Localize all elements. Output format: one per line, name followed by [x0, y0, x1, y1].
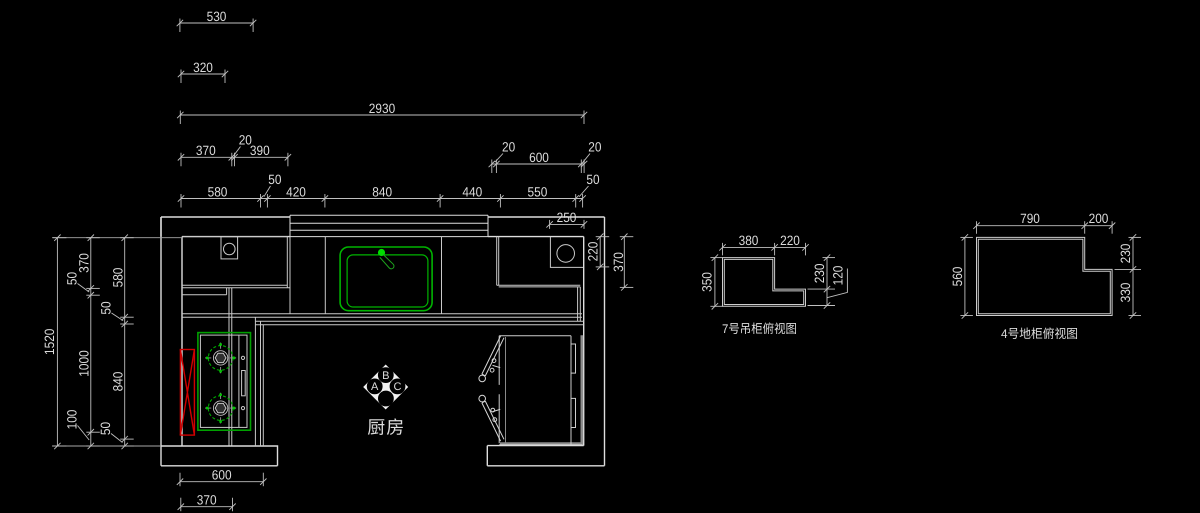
svg-text:1000: 1000: [77, 350, 92, 376]
svg-text:580: 580: [110, 268, 125, 288]
svg-text:330: 330: [1118, 283, 1133, 303]
svg-text:390: 390: [250, 143, 270, 158]
svg-text:20: 20: [588, 140, 601, 155]
svg-text:840: 840: [372, 184, 392, 199]
svg-text:100: 100: [65, 410, 80, 430]
svg-text:530: 530: [207, 9, 227, 24]
svg-text:50: 50: [65, 272, 80, 285]
svg-text:370: 370: [197, 492, 217, 507]
svg-text:840: 840: [110, 372, 125, 392]
svg-text:50: 50: [99, 301, 114, 314]
svg-text:350: 350: [700, 272, 715, 292]
svg-text:370: 370: [196, 143, 216, 158]
svg-text:440: 440: [462, 184, 482, 199]
svg-text:50: 50: [586, 172, 599, 187]
svg-text:7号吊柜俯视图: 7号吊柜俯视图: [722, 322, 797, 336]
svg-text:600: 600: [529, 150, 549, 165]
svg-text:C: C: [394, 381, 402, 393]
svg-text:20: 20: [502, 140, 515, 155]
svg-text:4号地柜俯视图: 4号地柜俯视图: [1001, 327, 1078, 341]
svg-text:320: 320: [193, 60, 213, 75]
svg-text:20: 20: [239, 133, 252, 148]
svg-text:120: 120: [830, 266, 845, 286]
svg-text:560: 560: [950, 267, 965, 287]
svg-text:550: 550: [528, 184, 548, 199]
svg-text:B: B: [382, 370, 389, 382]
svg-text:230: 230: [1118, 244, 1133, 264]
svg-text:220: 220: [780, 233, 800, 248]
svg-text:580: 580: [208, 184, 228, 199]
svg-text:1520: 1520: [42, 329, 57, 355]
svg-text:50: 50: [98, 422, 113, 435]
svg-text:380: 380: [739, 233, 759, 248]
svg-text:230: 230: [812, 264, 827, 284]
svg-text:220: 220: [586, 242, 601, 262]
svg-text:A: A: [371, 381, 379, 393]
svg-text:420: 420: [286, 184, 306, 199]
svg-text:370: 370: [77, 253, 92, 273]
svg-text:370: 370: [611, 252, 626, 272]
svg-text:250: 250: [557, 210, 577, 225]
svg-text:600: 600: [212, 467, 232, 482]
svg-text:厨房: 厨房: [367, 418, 404, 438]
svg-text:200: 200: [1089, 211, 1109, 226]
svg-text:50: 50: [268, 172, 281, 187]
svg-text:790: 790: [1020, 211, 1040, 226]
svg-text:2930: 2930: [369, 101, 395, 116]
